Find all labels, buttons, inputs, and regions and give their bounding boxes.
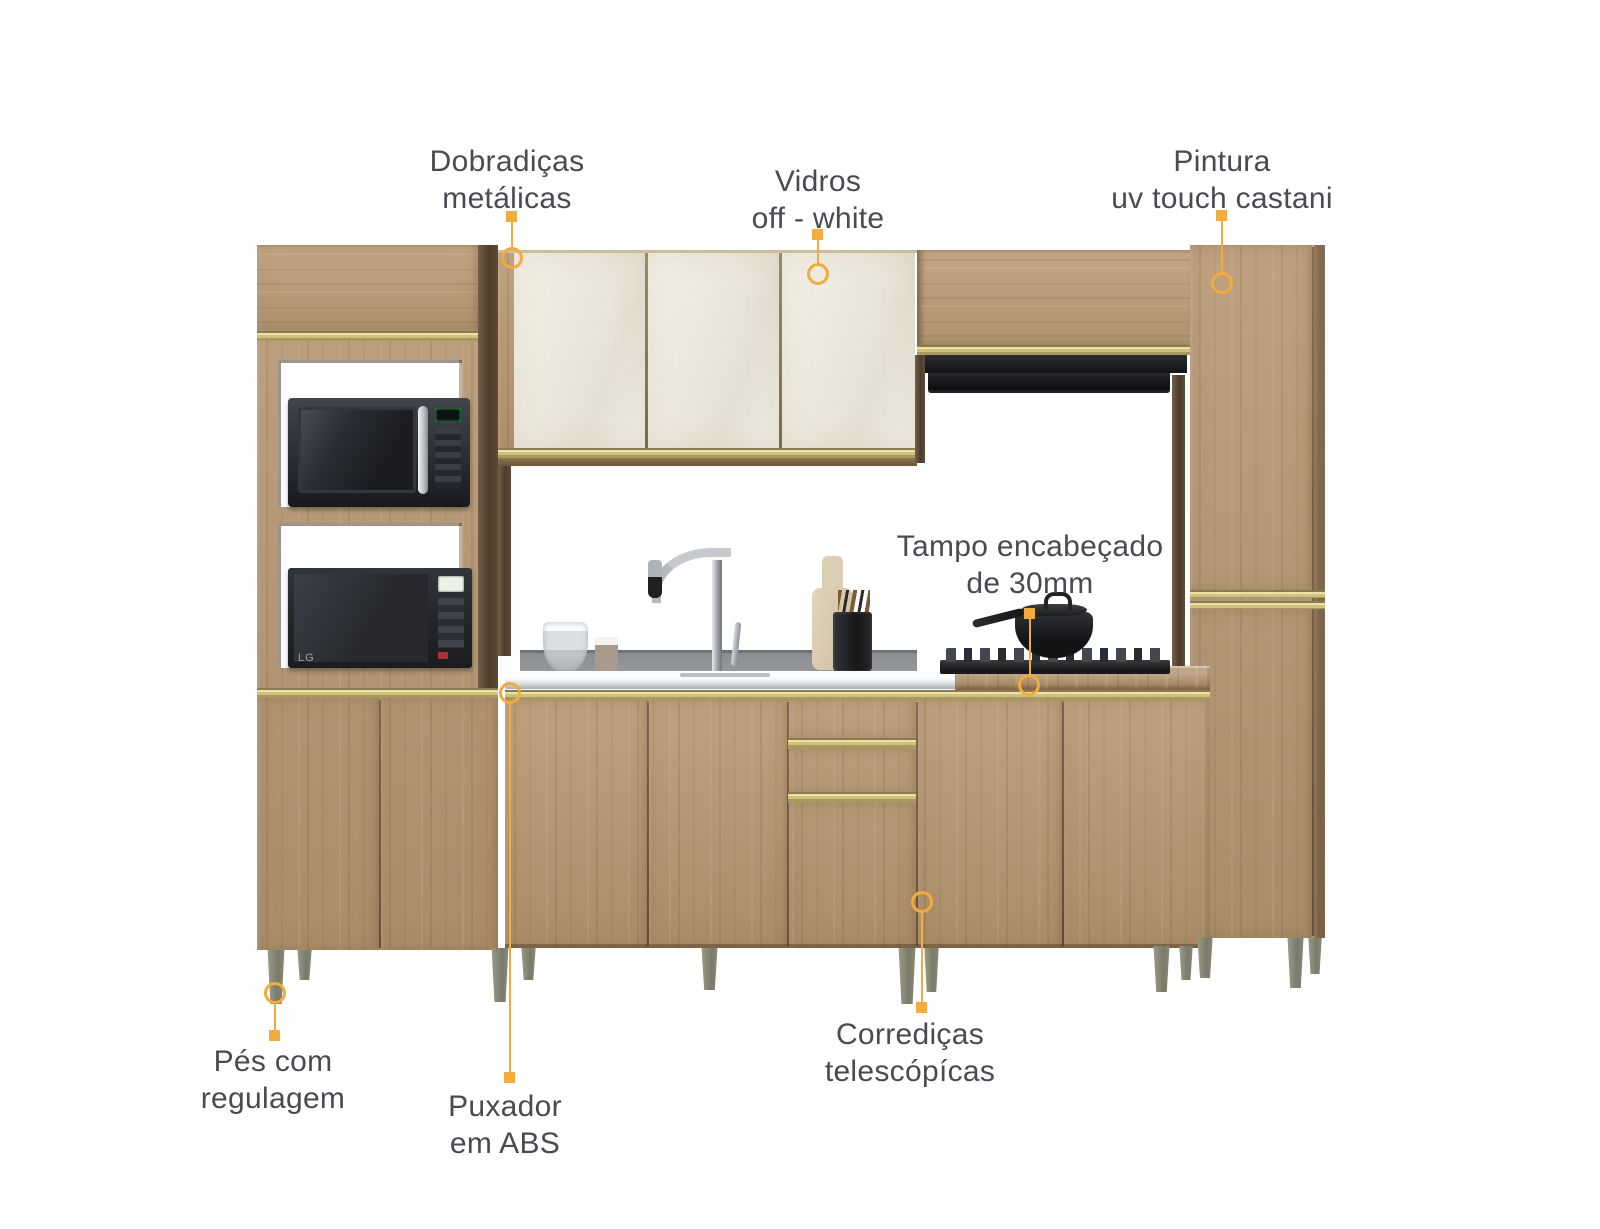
drawer-1-trim: [788, 738, 916, 749]
right-tower-upper-door: [1190, 245, 1312, 590]
drawer-2-trim: [788, 792, 916, 803]
faucet-arc: [652, 548, 731, 603]
foot: [1196, 938, 1214, 978]
glass-door-2: [648, 253, 779, 448]
callout-line: [1029, 619, 1031, 674]
marker-circle: [1018, 674, 1040, 696]
callout-line: [509, 704, 511, 1072]
microwave-lower-display: [438, 576, 464, 592]
glass-door-gap-2: [779, 253, 782, 448]
drawer-2: [788, 749, 916, 792]
marker-circle: [501, 247, 523, 269]
marker-circle: [911, 891, 933, 913]
marker-square: [504, 1072, 515, 1083]
marker-square: [506, 211, 517, 222]
marker-square: [1216, 210, 1227, 221]
base-door-1: [505, 700, 648, 948]
foot: [1178, 946, 1194, 980]
microwave-lower: LG: [288, 568, 472, 668]
glass-cabinet-bottom-edge: [498, 458, 917, 466]
base-run-bottom-shadow: [505, 944, 1210, 948]
hood-niche-left-strip: [915, 355, 925, 463]
foot: [700, 948, 719, 990]
callout-label: Dobradiças metálicas: [387, 143, 627, 217]
hood-niche-right-strip: [1172, 375, 1185, 670]
marker-square: [916, 1002, 927, 1013]
microwave-lower-door: [294, 574, 428, 662]
cup: [595, 637, 618, 673]
base-door-4: [1063, 700, 1210, 948]
foot: [897, 948, 917, 1004]
glass-door-gap-1: [645, 253, 648, 448]
hood-cabinet: [917, 250, 1190, 345]
callout-label: Pintura uv touch castani: [1072, 143, 1372, 217]
microwave-upper: [288, 398, 470, 507]
microwave-upper-window: [298, 407, 416, 493]
left-tower-base-door-right: [380, 698, 498, 950]
left-tower-upper-trim: [257, 331, 478, 341]
left-tower-side-panel: [478, 245, 498, 698]
foot: [923, 948, 940, 992]
faucet-spray-head: [648, 560, 662, 598]
mid-left-side-strip: [498, 466, 511, 656]
marker-circle: [807, 263, 829, 285]
microwave-lower-brand: LG: [298, 652, 315, 664]
foot: [520, 948, 537, 980]
callout-label: Tampo encabeçado de 30mm: [880, 528, 1180, 602]
foot: [1286, 938, 1305, 988]
glass-cabinet-left-stile: [498, 250, 514, 466]
marker-square: [812, 229, 823, 240]
sink-rim: [680, 673, 770, 677]
marker-circle: [1211, 272, 1233, 294]
microwave-upper-handle: [418, 406, 428, 494]
left-tower-lower-trim: [257, 688, 498, 698]
callout-label: Puxador em ABS: [385, 1088, 625, 1162]
base-gap-1: [647, 702, 649, 946]
foot: [490, 948, 510, 1002]
callout-line: [1221, 221, 1223, 272]
drawer-1: [788, 700, 916, 738]
range-hood: [920, 355, 1187, 373]
callout-line: [511, 222, 513, 248]
cutting-board-handle: [822, 556, 843, 594]
glass-door-1: [514, 253, 645, 448]
callout-label: Pés com regulagem: [153, 1043, 393, 1117]
callout-label: Vidros off - white: [698, 163, 938, 237]
marker-square: [269, 1030, 280, 1041]
base-door-2: [648, 700, 788, 948]
drawer-unit-door: [788, 803, 916, 948]
kitchen-product-diagram: LG: [0, 0, 1600, 1229]
marker-circle: [264, 982, 286, 1004]
microwave-lower-red-button: [438, 652, 448, 659]
foot: [1307, 938, 1323, 974]
marker-circle: [499, 682, 521, 704]
callout-line: [274, 1004, 276, 1030]
base-run-trim: [505, 690, 1210, 700]
callout-label: Corrediças telescópícas: [780, 1016, 1040, 1090]
foot: [296, 950, 313, 980]
left-tower-top-door: [257, 245, 478, 331]
glass-cabinet-trim: [498, 448, 917, 458]
microwave-lower-buttons: [438, 598, 464, 648]
microwave-upper-buttons: [435, 428, 461, 488]
base-door-3: [917, 700, 1063, 948]
hood-cabinet-trim: [917, 345, 1190, 355]
left-tower-door-gap: [379, 700, 381, 948]
foot: [1152, 946, 1171, 992]
callout-line: [921, 913, 923, 1002]
cooktop-base: [940, 660, 1170, 674]
range-hood-slider: [928, 373, 1170, 393]
right-tower-trim-lower: [1190, 601, 1325, 609]
callout-line: [817, 240, 819, 264]
marker-square: [1024, 608, 1035, 619]
microwave-upper-display: [435, 408, 461, 422]
base-gap-4: [1062, 702, 1064, 946]
utensil-holder: [833, 612, 872, 672]
glass-door-3: [782, 253, 915, 448]
right-tower-trim-upper: [1190, 590, 1325, 598]
left-tower-base-door-left: [257, 698, 379, 950]
